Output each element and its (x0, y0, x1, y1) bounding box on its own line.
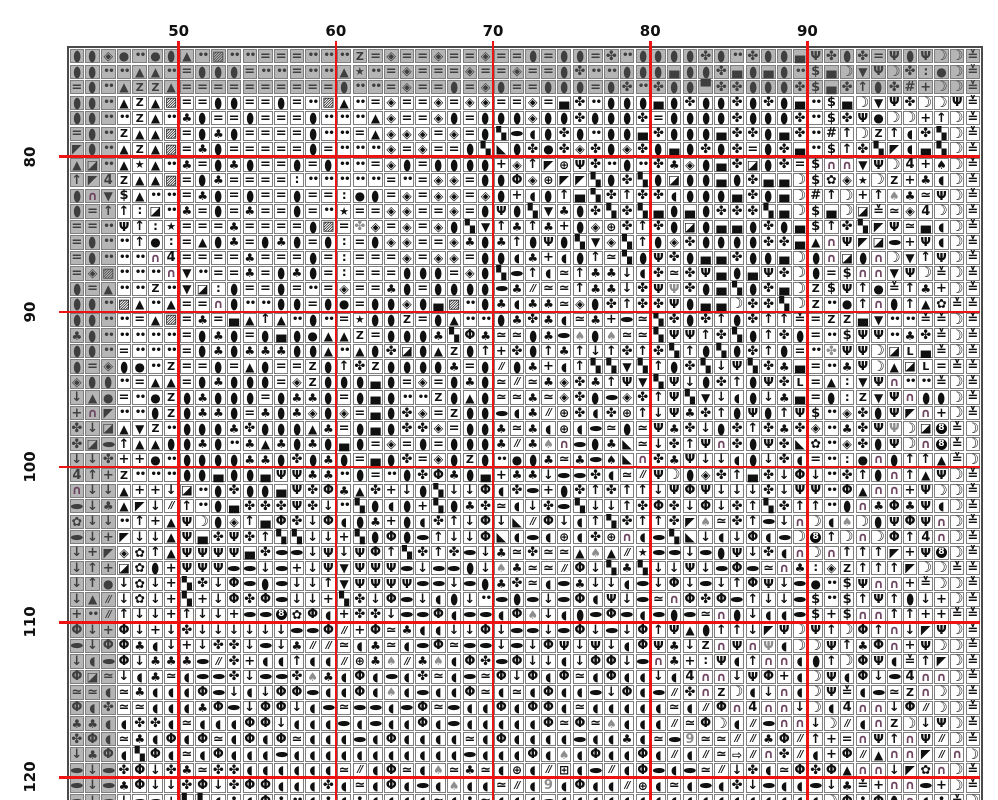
stitch-symbol: ● (702, 204, 710, 219)
grid-cell: ● (69, 95, 86, 111)
grid-cell: // (509, 436, 526, 452)
grid-cell: ☽ (792, 188, 809, 204)
grid-cell: ↓ (540, 622, 557, 638)
stitch-symbol: ☽ (904, 437, 917, 451)
stitch-symbol: = (590, 81, 601, 94)
stitch-symbol: ☽ (951, 329, 964, 343)
stitch-symbol: ⊕ (622, 407, 632, 419)
grid-cell: ∩ (635, 452, 652, 468)
grid-cell: ♣ (509, 219, 526, 235)
stitch-symbol: •• (591, 129, 601, 139)
grid-cell: ◤ (131, 498, 148, 514)
stitch-symbol: ☽ (888, 158, 901, 172)
stitch-symbol: •• (151, 191, 161, 201)
grid-cell: 8 (933, 420, 950, 436)
grid-cell: ● (556, 79, 573, 95)
grid-cell: + (603, 312, 620, 328)
stitch-symbol: •• (811, 98, 821, 108)
grid-cell: Φ (352, 684, 369, 700)
stitch-symbol: ● (230, 297, 238, 312)
stitch-symbol: ◤ (889, 547, 899, 560)
grid-cell: •• (462, 296, 479, 312)
grid-cell: ● (289, 622, 306, 638)
grid-cell: ● (870, 514, 887, 530)
grid-cell: = (273, 358, 290, 374)
grid-cell: ● (556, 591, 573, 607)
stitch-symbol: Ψ (559, 640, 570, 653)
stitch-symbol: ◖ (671, 671, 677, 683)
stitch-symbol: ♣ (543, 314, 554, 326)
grid-cell: Ψ (650, 250, 667, 266)
grid-cell: ↑ (729, 467, 746, 483)
grid-cell: ▄ (713, 281, 730, 297)
stitch-symbol: ≃ (559, 546, 570, 559)
stitch-symbol: ♣ (795, 562, 806, 574)
grid-cell: + (163, 560, 180, 576)
stitch-symbol: ● (670, 204, 678, 219)
grid-cell: ● (760, 405, 777, 421)
stitch-symbol: = (229, 143, 240, 156)
stitch-symbol: Ψ (795, 407, 806, 420)
grid-cell: ▚ (933, 126, 950, 142)
stitch-symbol: ▲ (119, 81, 128, 93)
grid-cell: Ψ (933, 188, 950, 204)
grid-cell: ◖ (635, 529, 652, 545)
stitch-symbol: ≚ (967, 298, 978, 311)
grid-cell: ↓ (446, 622, 463, 638)
grid-cell: ♣ (493, 296, 510, 312)
grid-cell: ↑ (870, 545, 887, 561)
grid-cell: Ψ (666, 374, 683, 390)
stitch-symbol: ▼ (905, 252, 914, 264)
stitch-symbol: ◪ (401, 345, 413, 358)
grid-cell: •• (587, 95, 604, 111)
stitch-symbol: •• (308, 284, 318, 294)
stitch-symbol: Φ (496, 701, 507, 714)
grid-cell: ▲ (163, 79, 180, 95)
stitch-symbol: ♣ (527, 423, 538, 435)
grid-cell: •• (336, 343, 353, 359)
stitch-symbol: ♣ (779, 392, 790, 404)
grid-cell: ↓ (163, 483, 180, 499)
stitch-symbol: Ψ (229, 531, 240, 544)
grid-cell: ◖ (399, 669, 416, 685)
stitch-symbol: ◈ (575, 143, 585, 156)
stitch-symbol: ≃ (87, 686, 98, 699)
stitch-symbol: ▄ (779, 251, 789, 264)
stitch-symbol: ● (697, 548, 714, 557)
stitch-symbol: ☽ (794, 251, 807, 265)
grid-cell: ✤ (242, 529, 259, 545)
grid-cell: •• (163, 281, 180, 297)
stitch-symbol: •• (245, 299, 255, 309)
stitch-symbol: ∩ (150, 252, 160, 265)
stitch-symbol: ▄ (779, 127, 789, 140)
stitch-symbol: ✤ (700, 593, 711, 606)
grid-cell: = (414, 281, 431, 297)
grid-cell: ● (697, 281, 714, 297)
stitch-symbol: ● (103, 392, 113, 404)
grid-cell: •• (336, 172, 353, 188)
stitch-symbol: ● (765, 126, 773, 141)
stitch-symbol: ● (592, 297, 600, 312)
grid-cell: ◖ (462, 700, 479, 716)
stitch-symbol: ♣ (229, 159, 240, 171)
stitch-symbol: ◖ (530, 128, 536, 140)
grid-cell: ↑ (917, 250, 934, 266)
grid-cell: ● (69, 188, 86, 204)
stitch-symbol: •• (371, 67, 381, 77)
stitch-symbol: ↓ (260, 624, 271, 637)
stitch-symbol: = (213, 112, 224, 125)
stitch-symbol: ∩ (873, 453, 883, 466)
grid-cell: ↓ (603, 498, 620, 514)
stitch-symbol: •• (905, 315, 915, 325)
grid-cell: ● (194, 374, 211, 390)
grid-cell: ≃ (650, 591, 667, 607)
grid-cell: •• (635, 79, 652, 95)
stitch-symbol: ● (686, 79, 694, 94)
stitch-symbol: ▄ (779, 282, 789, 295)
grid-cell: ◈ (572, 296, 589, 312)
grid-cell: ↓ (84, 622, 101, 638)
stitch-symbol: = (323, 251, 334, 264)
stitch-symbol: = (323, 143, 334, 156)
stitch-symbol: ▚ (936, 127, 946, 140)
stitch-symbol: = (339, 391, 350, 404)
grid-cell: ◈ (430, 172, 447, 188)
grid-cell: ♣ (69, 715, 86, 731)
grid-cell: ∩ (69, 483, 86, 499)
stitch-symbol: ✤ (779, 236, 790, 249)
stitch-symbol: ● (497, 79, 505, 94)
grid-cell: ◖ (650, 700, 667, 716)
grid-cell: // (540, 405, 557, 421)
grid-cell: ♣ (917, 172, 934, 188)
grid-cell: ● (650, 607, 667, 623)
stitch-symbol: ♣ (590, 267, 601, 279)
stitch-symbol: ◪ (118, 562, 130, 575)
stitch-symbol: ∩ (936, 531, 946, 544)
grid-cell: Φ (713, 591, 730, 607)
stitch-symbol: ● (686, 312, 694, 327)
grid-cell: ● (509, 591, 526, 607)
stitch-symbol: Ψ (543, 236, 554, 249)
grid-cell: ≚ (965, 296, 982, 312)
stitch-symbol: ● (686, 467, 694, 482)
grid-cell: ✤ (367, 607, 384, 623)
stitch-symbol: ● (293, 421, 301, 436)
grid-cell: •• (823, 358, 840, 374)
stitch-symbol: ▚ (701, 360, 711, 373)
stitch-symbol: ● (556, 579, 573, 588)
grid-cell: ↑ (839, 638, 856, 654)
stitch-symbol: ♠ (433, 655, 444, 667)
grid-cell: ↓ (713, 483, 730, 499)
stitch-symbol: ✤ (763, 469, 774, 482)
grid-cell: = (462, 79, 479, 95)
grid-cell: = (304, 203, 321, 219)
grid-cell: ∶ (839, 374, 856, 390)
stitch-symbol: Ψ (936, 190, 947, 203)
stitch-symbol: ≚ (967, 515, 978, 528)
stitch-symbol: ◖ (482, 702, 488, 714)
stitch-symbol: ▲ (811, 236, 820, 248)
stitch-symbol: ◈ (386, 438, 396, 451)
stitch-symbol: ≃ (339, 701, 350, 714)
stitch-symbol: ♠ (590, 547, 601, 559)
stitch-symbol: ⊕ (559, 159, 569, 171)
stitch-symbol: •• (119, 315, 129, 325)
stitch-symbol: ∩ (795, 516, 805, 529)
grid-cell: = (179, 219, 196, 235)
grid-cell: ▚ (493, 126, 510, 142)
stitch-symbol: ≃ (527, 562, 538, 575)
grid-cell: ▚ (179, 591, 196, 607)
grid-cell: 8 (933, 436, 950, 452)
grid-cell: Φ (430, 607, 447, 623)
grid-cell: ☽ (666, 467, 683, 483)
stitch-symbol: ⊕ (355, 655, 365, 667)
stitch-symbol: + (119, 453, 130, 466)
grid-cell: ↓ (131, 529, 148, 545)
grid-cell: ● (273, 452, 290, 468)
stitch-symbol: ↓ (166, 484, 177, 497)
grid-cell: ♣ (509, 312, 526, 328)
stitch-symbol: ☽ (809, 685, 822, 699)
stitch-symbol: + (543, 251, 554, 264)
grid-cell: = (273, 79, 290, 95)
stitch-symbol: = (276, 205, 287, 218)
stitch-symbol: ☽ (809, 639, 822, 653)
grid-cell: ● (587, 436, 604, 452)
grid-cell: ↑ (572, 358, 589, 374)
grid-cell: ☽ (949, 467, 966, 483)
grid-cell: ● (524, 343, 541, 359)
stitch-symbol: ▚ (449, 329, 459, 342)
stitch-symbol: ↓ (480, 546, 491, 559)
grid-cell: ● (446, 452, 463, 468)
grid-cell: ✤ (587, 203, 604, 219)
grid-cell: ● (320, 296, 337, 312)
stitch-symbol: Z (450, 346, 458, 357)
grid-cell: = (257, 389, 274, 405)
grid-cell: Φ (430, 467, 447, 483)
stitch-symbol: ● (513, 204, 521, 219)
stitch-symbol: ↑ (181, 500, 192, 513)
grid-cell: Z (163, 405, 180, 421)
grid-cell: ✤ (650, 265, 667, 281)
stitch-symbol: ◈ (434, 221, 444, 234)
stitch-symbol: ♣ (905, 330, 916, 342)
grid-cell: ≚ (949, 296, 966, 312)
grid-cell: ● (666, 358, 683, 374)
grid-cell: = (430, 436, 447, 452)
grid-cell: Ψ (729, 638, 746, 654)
stitch-symbol: ◈ (449, 252, 459, 265)
stitch-symbol: ↑ (653, 391, 664, 404)
grid-cell: ♣ (587, 312, 604, 328)
grid-cell: ≃ (524, 374, 541, 390)
grid-cell: ◪ (100, 420, 117, 436)
stitch-symbol: ∶ (138, 205, 142, 217)
grid-cell: ● (587, 110, 604, 126)
grid-cell: ▲ (336, 64, 353, 80)
stitch-symbol: ↓ (197, 639, 208, 652)
grid-cell: ♣ (587, 281, 604, 297)
stitch-symbol: Φ (71, 624, 82, 637)
grid-cell: = (194, 95, 211, 111)
stitch-symbol: ↓ (323, 500, 334, 513)
grid-cell: = (399, 95, 416, 111)
grid-cell: ◖ (131, 669, 148, 685)
stitch-symbol: ▲ (135, 190, 144, 202)
grid-cell: ● (304, 219, 321, 235)
grid-cell: = (194, 157, 211, 173)
stitch-symbol: = (512, 50, 523, 63)
grid-cell: •• (131, 265, 148, 281)
stitch-symbol: ∩ (842, 159, 852, 172)
stitch-symbol: ≚ (952, 438, 963, 451)
grid-cell: = (446, 141, 463, 157)
grid-cell: ● (682, 110, 699, 126)
stitch-symbol: Z (403, 314, 411, 325)
grid-cell: ● (399, 327, 416, 343)
grid-cell: ↑ (116, 607, 133, 623)
grid-cell: ● (289, 203, 306, 219)
stitch-symbol: ● (150, 454, 160, 466)
grid-cell: ♣ (273, 436, 290, 452)
grid-cell: ☽ (886, 157, 903, 173)
stitch-symbol: Ψ (905, 267, 916, 280)
stitch-symbol: + (559, 220, 570, 233)
stitch-symbol: ● (199, 64, 207, 79)
stitch-symbol: ◈ (559, 376, 569, 389)
stitch-symbol: Φ (889, 531, 900, 544)
stitch-symbol: ✤ (826, 50, 837, 63)
grid-cell: ◣ (682, 529, 699, 545)
grid-cell: ◖ (713, 529, 730, 545)
grid-cell: $ (823, 281, 840, 297)
grid-cell: ↓ (776, 576, 793, 592)
grid-cell: Φ (745, 529, 762, 545)
grid-cell: = (257, 172, 274, 188)
grid-cell: ↑ (823, 188, 840, 204)
grid-cell: Ψ (933, 250, 950, 266)
stitch-symbol: ▄ (826, 81, 836, 94)
grid-cell: Φ (352, 669, 369, 685)
stitch-symbol: Φ (622, 686, 633, 699)
grid-cell: = (226, 141, 243, 157)
grid-cell: ◖ (729, 452, 746, 468)
stitch-symbol: ▚ (653, 313, 663, 326)
stitch-symbol: = (386, 267, 397, 280)
grid-cell: ↓ (697, 420, 714, 436)
grid-cell: ♣ (524, 389, 541, 405)
stitch-symbol: ≚ (967, 562, 978, 575)
grid-cell: Φ (320, 514, 337, 530)
grid-cell: = (336, 389, 353, 405)
stitch-symbol: ≚ (967, 112, 978, 125)
stitch-symbol: •• (827, 579, 837, 589)
grid-cell: ↑ (729, 374, 746, 390)
grid-cell: Ψ (367, 560, 384, 576)
grid-cell: ◖ (666, 188, 683, 204)
grid-cell: ♣ (179, 157, 196, 173)
grid-cell: ▚ (933, 141, 950, 157)
grid-cell: ◈ (336, 281, 353, 297)
grid-cell: ☽ (855, 95, 872, 111)
grid-cell: = (257, 203, 274, 219)
grid-cell: ◈ (399, 64, 416, 80)
grid-cell: // (399, 653, 416, 669)
stitch-symbol: ● (749, 219, 757, 234)
grid-cell: ↓ (304, 591, 321, 607)
grid-cell: ▚ (776, 296, 793, 312)
stitch-symbol: ↓ (716, 453, 727, 466)
grid-cell: ● (399, 498, 416, 514)
stitch-symbol: ● (246, 390, 254, 405)
stitch-symbol: ✤ (732, 438, 743, 451)
grid-cell: ● (352, 420, 369, 436)
stitch-symbol: = (181, 96, 192, 109)
grid-cell: ↓ (745, 483, 762, 499)
grid-cell: ≚ (965, 281, 982, 297)
stitch-symbol: Φ (763, 670, 774, 683)
stitch-symbol: •• (103, 98, 113, 108)
grid-cell: = (745, 141, 762, 157)
grid-cell: ● (210, 64, 227, 80)
stitch-symbol: •• (339, 51, 349, 61)
stitch-symbol: ● (372, 297, 380, 312)
grid-cell: ✤ (650, 343, 667, 359)
grid-cell: Ψ (886, 389, 903, 405)
grid-cell: ● (477, 157, 494, 173)
stitch-symbol: = (449, 96, 460, 109)
stitch-symbol: ◖ (278, 655, 284, 667)
stitch-symbol: ● (623, 64, 631, 79)
stitch-symbol: ↑ (119, 438, 130, 451)
stitch-symbol: + (606, 313, 617, 326)
grid-cell: ∩ (823, 157, 840, 173)
grid-cell: ∶ (163, 234, 180, 250)
stitch-symbol: // (404, 657, 409, 667)
grid-cell: ↓ (446, 529, 463, 545)
grid-cell: ✤ (697, 405, 714, 421)
stitch-symbol: ✤ (260, 546, 271, 559)
grid-cell: ▄ (713, 250, 730, 266)
grid-cell: ↓ (383, 607, 400, 623)
stitch-symbol: ● (556, 331, 573, 340)
stitch-symbol: ✤ (574, 484, 585, 497)
grid-cell: ● (462, 281, 479, 297)
grid-cell: ◣ (792, 436, 809, 452)
stitch-symbol: ▚ (182, 593, 192, 606)
grid-cell: = (414, 110, 431, 126)
stitch-symbol: ● (572, 440, 589, 449)
grid-cell: ● (69, 281, 86, 297)
stitch-symbol: ✤ (433, 515, 444, 528)
stitch-symbol: ≚ (905, 655, 916, 668)
stitch-symbol: ● (340, 452, 348, 467)
grid-cell: ● (807, 265, 824, 281)
stitch-symbol: ● (466, 561, 474, 576)
grid-cell: ▲ (367, 110, 384, 126)
stitch-symbol: ≃ (527, 577, 538, 590)
stitch-symbol: ▚ (575, 500, 585, 513)
stitch-symbol: ● (482, 173, 490, 188)
grid-cell: ▄ (713, 126, 730, 142)
